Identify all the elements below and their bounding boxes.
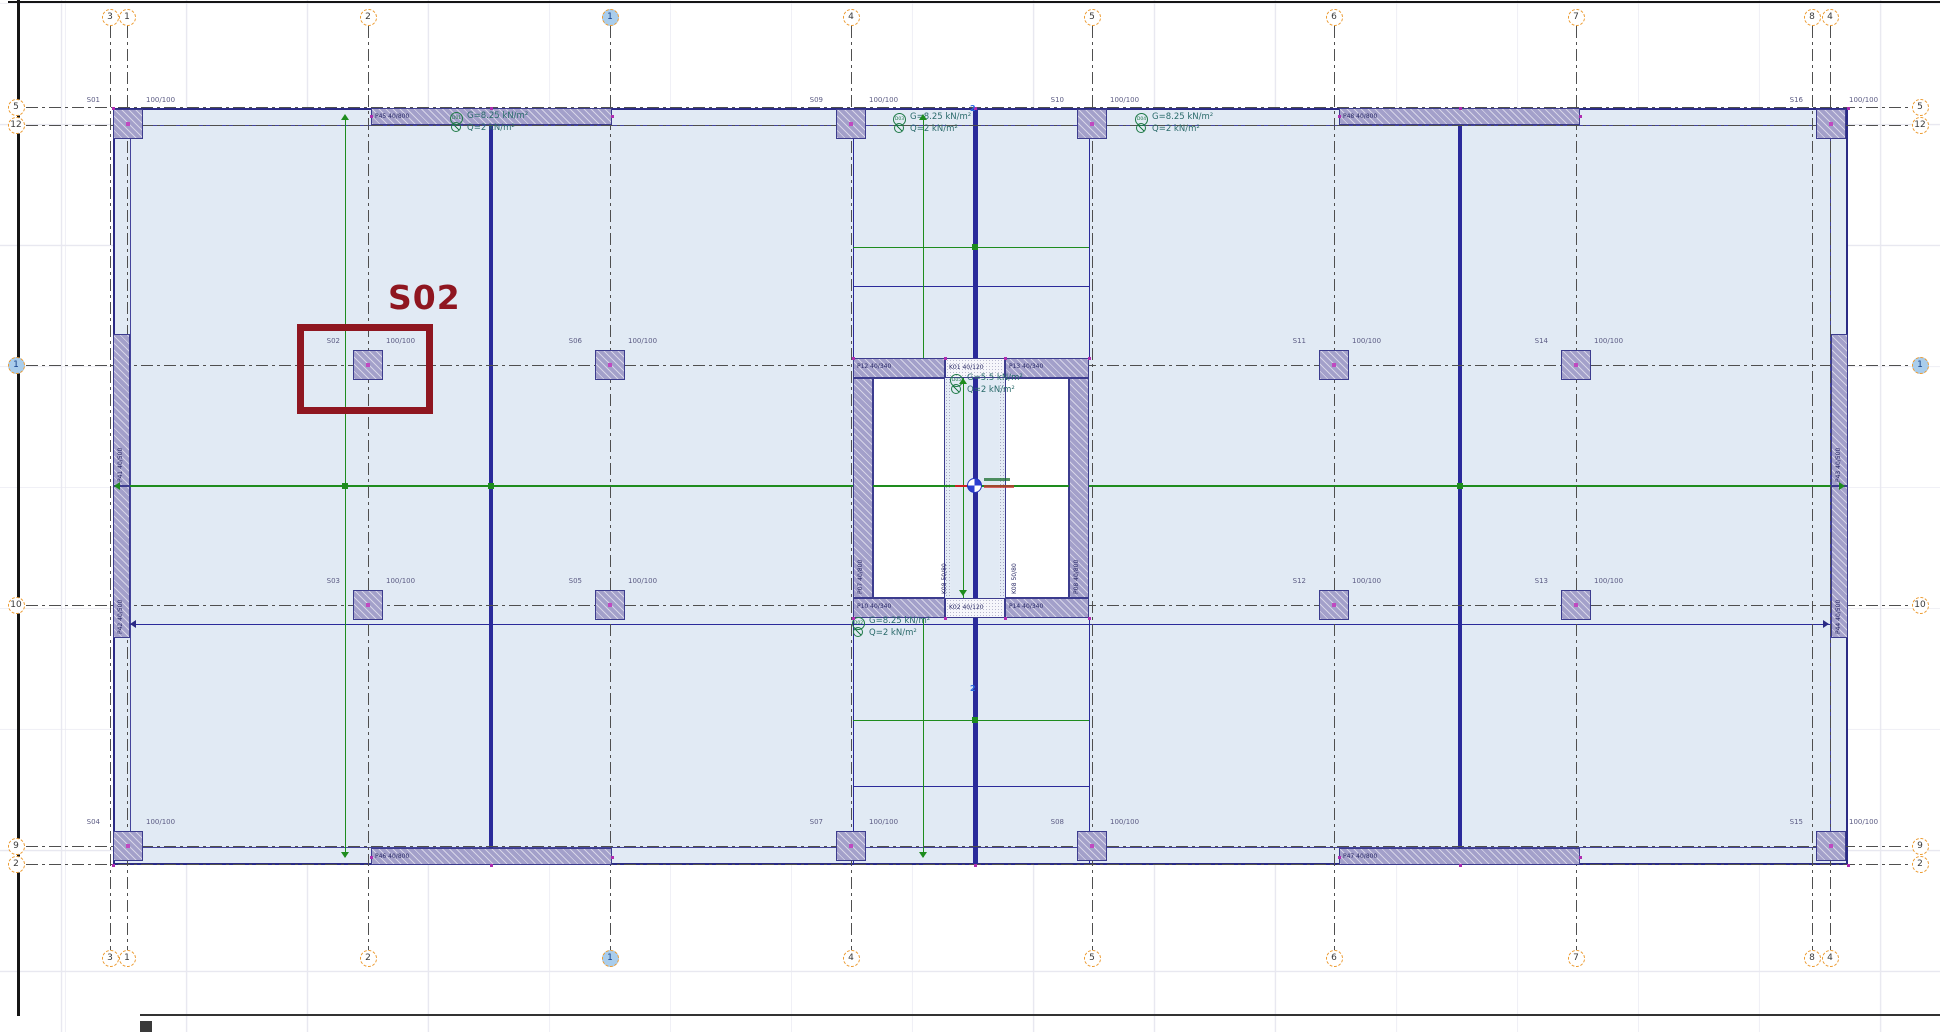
grid-axis-horizontal[interactable] xyxy=(26,125,1910,126)
grid-axis-vertical[interactable] xyxy=(110,26,111,950)
axis-bubble[interactable]: 2 xyxy=(360,9,377,26)
grid-axis-vertical[interactable] xyxy=(368,26,369,950)
axis-bubble[interactable]: 1 xyxy=(119,950,136,967)
cad-canvas[interactable]: 331122114455667788445512121110109922P45 … xyxy=(0,0,1940,1032)
column-id-label: S08 xyxy=(1022,818,1064,826)
node-dot xyxy=(944,617,947,620)
column-center-dot xyxy=(1829,122,1833,126)
column-dim-label: 100/100 xyxy=(1352,337,1402,345)
grid-axis-vertical[interactable] xyxy=(610,26,611,950)
axis-bubble[interactable]: 1 xyxy=(1912,357,1929,374)
line-arrowhead xyxy=(959,378,967,384)
node-dot xyxy=(974,864,977,867)
line-arrowhead xyxy=(959,590,967,596)
column-center-dot xyxy=(1332,363,1336,367)
core-beam-label: K01 40/120 xyxy=(949,364,984,371)
slab-load-g: G=5.5 kN/m² xyxy=(967,373,1023,383)
axis-bubble[interactable]: 10 xyxy=(8,597,25,614)
shear-wall-label: P44 40/500 xyxy=(1835,600,1842,634)
green-node-marker xyxy=(972,717,978,723)
slab-load-q: Q=2 kN/m² xyxy=(869,628,917,638)
column-id-label: S11 xyxy=(1264,337,1306,345)
beam-label: K08 50/80 xyxy=(941,563,948,594)
grid-axis-horizontal[interactable] xyxy=(26,864,1910,865)
axis-bubble[interactable]: 9 xyxy=(8,838,25,855)
shear-wall-label: P13 40/340 xyxy=(1009,363,1043,370)
column-dim-label: 100/100 xyxy=(1849,96,1899,104)
node-dot xyxy=(1088,357,1091,360)
slab-direction-circle xyxy=(894,123,904,133)
green-node-marker xyxy=(342,483,348,489)
line-arrowhead xyxy=(1839,482,1845,490)
node-dot xyxy=(1459,864,1462,867)
column-dim-label: 100/100 xyxy=(869,96,919,104)
beam-line xyxy=(1089,108,1090,358)
column-id-label: S01 xyxy=(58,96,100,104)
line-arrowhead xyxy=(341,114,349,120)
column-dim-label: 100/100 xyxy=(386,577,436,585)
node-dot xyxy=(1459,107,1462,110)
node-dot xyxy=(112,864,115,867)
node-dot xyxy=(1338,856,1341,859)
shear-wall-label: P14 40/340 xyxy=(1009,603,1043,610)
slab-load-g: G=8.25 kN/m² xyxy=(1152,112,1213,122)
column-id-label: S03 xyxy=(298,577,340,585)
node-dot xyxy=(370,115,373,118)
shear-wall-label: P48 40/800 xyxy=(1343,113,1377,120)
core-beam-label: K02 40/120 xyxy=(949,604,984,611)
grid-axis-vertical[interactable] xyxy=(1334,26,1335,950)
slab-direction-circle xyxy=(853,627,863,637)
node-dot xyxy=(490,107,493,110)
axis-bubble[interactable]: 4 xyxy=(1822,9,1839,26)
line-arrowhead xyxy=(919,114,927,120)
axis-bubble[interactable]: 12 xyxy=(1912,117,1929,134)
column-id-label: S07 xyxy=(781,818,823,826)
column-center-dot xyxy=(126,844,130,848)
shear-wall-label: P12 40/340 xyxy=(857,363,891,370)
axis-bubble[interactable]: 1 xyxy=(119,9,136,26)
column-center-dot xyxy=(1090,844,1094,848)
column-center-dot xyxy=(608,603,612,607)
column-dim-label: 100/100 xyxy=(628,337,678,345)
node-dot xyxy=(944,357,947,360)
axis-bubble[interactable]: 5 xyxy=(8,99,25,116)
axis-bubble[interactable]: 6 xyxy=(1326,950,1343,967)
column-center-dot xyxy=(1090,122,1094,126)
shear-wall-label: P45 40/800 xyxy=(375,113,409,120)
column-dim-label: 100/100 xyxy=(1110,818,1160,826)
beam-line xyxy=(853,786,1089,787)
s02-highlight-label: S02 xyxy=(388,278,461,317)
axis-reference-green-line xyxy=(853,720,1089,721)
axis-bubble[interactable]: 5 xyxy=(1084,9,1101,26)
floor-plan: 331122114455667788445512121110109922P45 … xyxy=(0,0,1940,1032)
stair-strip-edge xyxy=(999,378,1005,598)
node-dot xyxy=(1004,617,1007,620)
selected-beam-mark: 2 xyxy=(970,104,976,113)
shear-wall-label: P08 40/800 xyxy=(1073,560,1080,594)
axis-bubble[interactable]: 10 xyxy=(1912,597,1929,614)
beam-label: K08 50/80 xyxy=(1011,563,1018,594)
slab-load-q: Q=2 kN/m² xyxy=(467,123,515,133)
node-dot xyxy=(611,856,614,859)
beam-line xyxy=(853,618,854,865)
grid-axis-horizontal[interactable] xyxy=(26,107,1910,108)
node-dot xyxy=(370,856,373,859)
column-center-dot xyxy=(849,844,853,848)
shear-wall-label: P47 40/800 xyxy=(1343,853,1377,860)
shear-wall-label: P46 40/800 xyxy=(375,853,409,860)
slab-load-q: Q=2 kN/m² xyxy=(1152,124,1200,134)
node-dot xyxy=(1088,617,1091,620)
axis-bubble[interactable]: 4 xyxy=(1822,950,1839,967)
grid-axis-vertical[interactable] xyxy=(1812,26,1813,950)
node-dot xyxy=(1579,856,1582,859)
shear-wall-label: P41 40/500 xyxy=(117,448,124,482)
green-node-marker xyxy=(1457,483,1463,489)
slab-load-q: Q=2 kN/m² xyxy=(967,385,1015,395)
axis-bubble[interactable]: 2 xyxy=(1912,856,1929,873)
slab-load-g: G=8.25 kN/m² xyxy=(467,111,528,121)
beam-line xyxy=(853,286,1089,287)
column-id-label: S10 xyxy=(1022,96,1064,104)
shear-wall-label: P42 40/500 xyxy=(117,600,124,634)
axis-bubble[interactable]: 3 xyxy=(102,9,119,26)
node-dot xyxy=(1004,357,1007,360)
column-center-dot xyxy=(1574,603,1578,607)
axis-bubble[interactable]: 2 xyxy=(8,856,25,873)
axis-reference-green-line xyxy=(923,120,924,360)
column-id-label: S13 xyxy=(1506,577,1548,585)
axis-bubble[interactable]: 1 xyxy=(602,9,619,26)
column-center-dot xyxy=(1829,844,1833,848)
axis-reference-green-line xyxy=(963,378,964,598)
s02-highlight-rect[interactable] xyxy=(297,324,433,414)
core-opening-left xyxy=(873,378,945,598)
node-dot xyxy=(611,115,614,118)
axis-reference-green-line xyxy=(853,247,1089,248)
beam-line xyxy=(853,108,854,358)
line-arrowhead xyxy=(1823,620,1829,628)
selected-beam-mark: 2 xyxy=(970,684,976,693)
axis-bubble[interactable]: 4 xyxy=(843,950,860,967)
grid-axis-vertical[interactable] xyxy=(1092,26,1093,950)
line-arrowhead xyxy=(130,620,136,628)
node-dot xyxy=(1847,864,1850,867)
column-id-label: S12 xyxy=(1264,577,1306,585)
column-id-label: S09 xyxy=(781,96,823,104)
green-node-marker xyxy=(488,483,494,489)
column-id-label: S06 xyxy=(540,337,582,345)
origin-marker-icon[interactable] xyxy=(967,478,982,493)
axis-bubble[interactable]: 8 xyxy=(1804,9,1821,26)
column-dim-label: 100/100 xyxy=(1849,818,1899,826)
column-center-dot xyxy=(608,363,612,367)
shear-wall-label: P10 40/340 xyxy=(857,603,891,610)
column-center-dot xyxy=(849,122,853,126)
column-dim-label: 100/100 xyxy=(1110,96,1160,104)
line-arrowhead xyxy=(341,852,349,858)
axis-bubble[interactable]: 9 xyxy=(1912,838,1929,855)
green-node-marker xyxy=(972,244,978,250)
column-id-label: S16 xyxy=(1761,96,1803,104)
axis-bubble[interactable]: 5 xyxy=(1912,99,1929,116)
axis-bubble[interactable]: 4 xyxy=(843,9,860,26)
column-dim-label: 100/100 xyxy=(628,577,678,585)
column-dim-label: 100/100 xyxy=(1594,577,1644,585)
node-dot xyxy=(490,864,493,867)
slab-direction-circle xyxy=(951,384,961,394)
shear-wall-label: P07 40/800 xyxy=(857,560,864,594)
column-dim-label: 100/100 xyxy=(146,818,196,826)
origin-marker-tick xyxy=(955,485,967,487)
origin-marker-text-top xyxy=(984,478,1010,481)
column-id-label: S15 xyxy=(1761,818,1803,826)
column-center-dot xyxy=(366,603,370,607)
column-dim-label: 100/100 xyxy=(869,818,919,826)
node-dot xyxy=(112,107,115,110)
axis-bubble[interactable]: 12 xyxy=(8,117,25,134)
axis-bubble[interactable]: 1 xyxy=(602,950,619,967)
node-dot xyxy=(1579,115,1582,118)
axis-bubble[interactable]: 6 xyxy=(1326,9,1343,26)
column-id-label: S04 xyxy=(58,818,100,826)
beam-line xyxy=(1089,618,1090,865)
axis-bubble[interactable]: 7 xyxy=(1568,950,1585,967)
slab-direction-circle xyxy=(451,122,461,132)
axis-reference-green-line xyxy=(923,616,924,857)
slab-load-g: G=8.25 kN/m² xyxy=(869,616,930,626)
axis-bubble[interactable]: 5 xyxy=(1084,950,1101,967)
column-center-dot xyxy=(1574,363,1578,367)
node-dot xyxy=(852,617,855,620)
column-id-label: S14 xyxy=(1506,337,1548,345)
slab-direction-circle xyxy=(1136,123,1146,133)
grid-axis-vertical[interactable] xyxy=(851,26,852,950)
axis-bubble[interactable]: 3 xyxy=(102,950,119,967)
origin-marker-text-bottom xyxy=(984,485,1014,488)
column-dim-label: 100/100 xyxy=(146,96,196,104)
axis-bubble[interactable]: 1 xyxy=(8,357,25,374)
node-dot xyxy=(1338,115,1341,118)
axis-bubble[interactable]: 8 xyxy=(1804,950,1821,967)
slab-load-q: Q=2 kN/m² xyxy=(910,124,958,134)
line-arrowhead xyxy=(114,482,120,490)
axis-bubble[interactable]: 2 xyxy=(360,950,377,967)
grid-axis-vertical[interactable] xyxy=(1576,26,1577,950)
column-id-label: S05 xyxy=(540,577,582,585)
node-dot xyxy=(852,357,855,360)
column-center-dot xyxy=(1332,603,1336,607)
node-dot xyxy=(1847,107,1850,110)
column-dim-label: 100/100 xyxy=(1352,577,1402,585)
column-center-dot xyxy=(126,122,130,126)
column-dim-label: 100/100 xyxy=(1594,337,1644,345)
axis-bubble[interactable]: 7 xyxy=(1568,9,1585,26)
line-arrowhead xyxy=(919,852,927,858)
shear-wall-label: P43 40/500 xyxy=(1835,448,1842,482)
grid-axis-horizontal[interactable] xyxy=(26,846,1910,847)
